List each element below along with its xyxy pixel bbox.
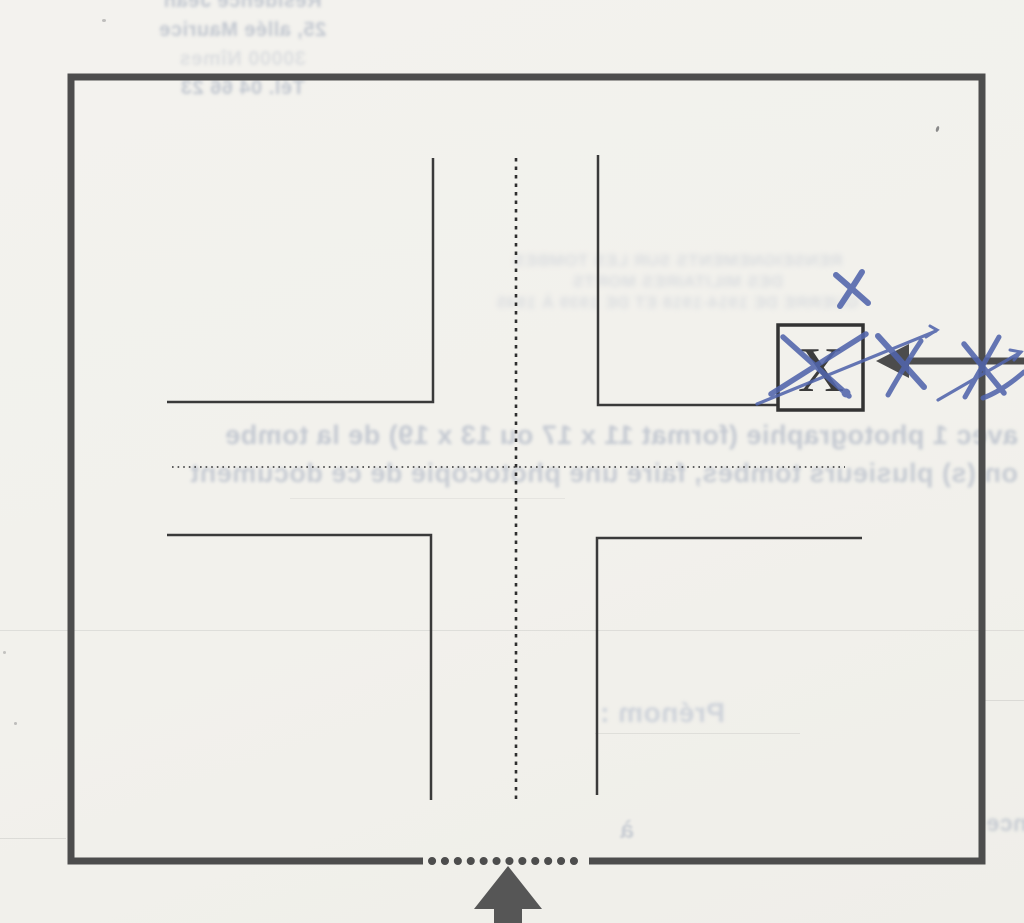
entrance-arrow-head [474, 866, 542, 909]
entrance-arrow-stem [494, 906, 522, 923]
scanned-page: Résidence Jean 25, allée Maurice 30000 N… [0, 0, 1024, 923]
road-edge-top-left [167, 158, 433, 402]
pen-ink-blob [842, 389, 851, 398]
road-edge-top-right [598, 155, 777, 405]
road-edge-bottom-left [167, 535, 431, 800]
pen-small-x-stroke [840, 272, 862, 306]
road-edge-bottom-right [597, 538, 862, 795]
cemetery-plan-diagram: X [0, 0, 1024, 923]
enclosure-border [71, 77, 982, 861]
entrance-arrow-icon [474, 866, 542, 923]
road-edges [167, 155, 862, 800]
